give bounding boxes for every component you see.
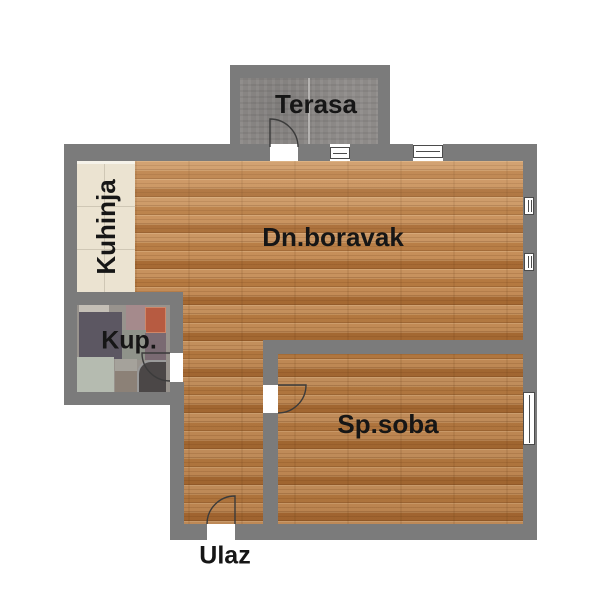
entrance-door-arc-icon [207,496,235,524]
bathroom-label: Kup. [101,329,157,354]
bedroom-label: Sp.soba [337,411,438,437]
bedroom-door-arc-icon [278,385,306,413]
entrance-label: Ulaz [199,544,250,569]
floor-plan: Terasa Kuhinja Dn.boravak Kup. Sp.soba U… [0,0,600,603]
kitchen-label: Kuhinja [93,179,119,274]
terrace-label: Terasa [275,91,357,117]
terrace-door-arc-icon [270,119,298,147]
living-room-label: Dn.boravak [262,224,404,250]
bathroom-door-arc-icon [142,353,170,381]
